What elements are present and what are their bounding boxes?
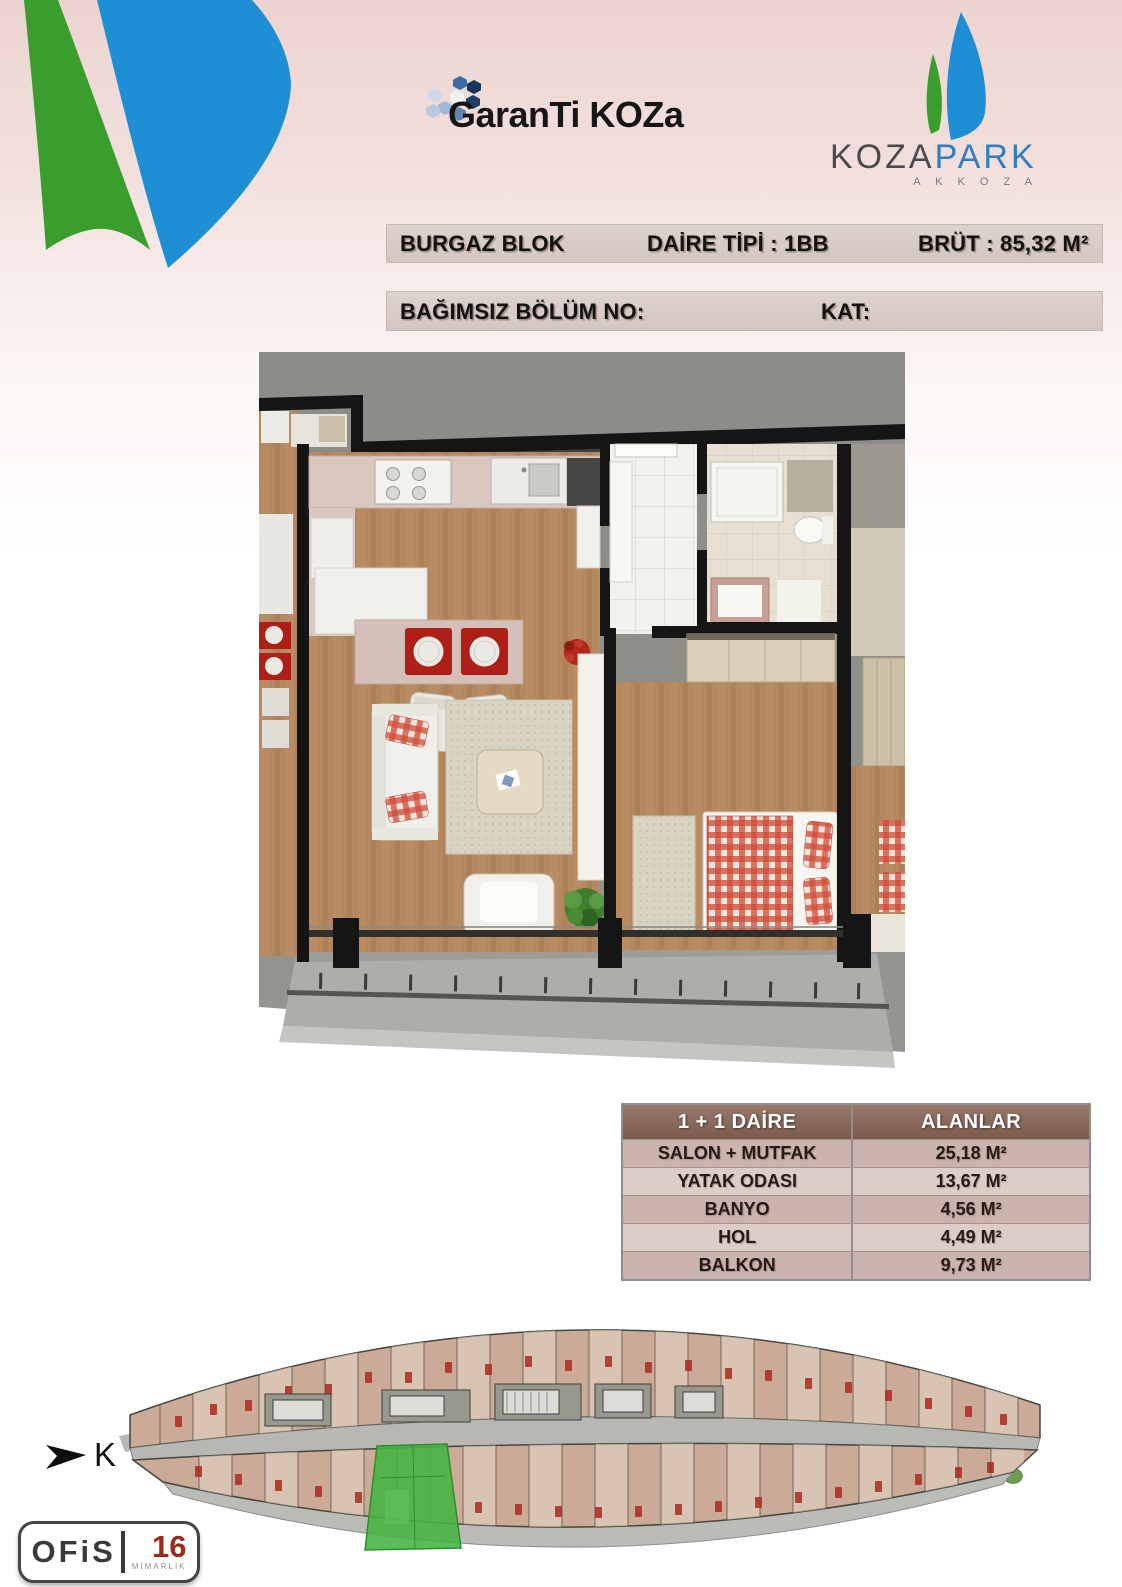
entry-door bbox=[615, 444, 677, 457]
room-area: 4,49 M² bbox=[851, 1224, 1089, 1251]
tv-cabinet bbox=[578, 654, 604, 880]
north-arrow-icon bbox=[46, 1442, 88, 1472]
table-row: SALON + MUTFAK 25,18 M² bbox=[623, 1139, 1089, 1167]
bathroom bbox=[707, 444, 837, 626]
neighbor-unit-left bbox=[259, 411, 297, 956]
ofis-divider bbox=[121, 1531, 125, 1573]
table-row: HOL 4,49 M² bbox=[623, 1223, 1089, 1251]
north-label: K bbox=[94, 1436, 116, 1474]
bed bbox=[703, 812, 837, 936]
room-area: 13,67 M² bbox=[851, 1168, 1089, 1195]
room-area: 25,18 M² bbox=[851, 1140, 1089, 1167]
wall-left bbox=[297, 444, 309, 962]
table-row: YATAK ODASI 13,67 M² bbox=[623, 1167, 1089, 1195]
ofis-number: 16 bbox=[152, 1533, 186, 1561]
unit-type: DAİRE TİPİ : 1BB bbox=[647, 231, 829, 257]
floor-label: KAT: bbox=[821, 299, 870, 325]
apartment-floorplan-image bbox=[259, 352, 905, 1075]
hall-closet bbox=[610, 462, 632, 582]
corner-sail-logo-icon bbox=[0, 0, 300, 275]
table-row: BALKON 9,73 M² bbox=[623, 1251, 1089, 1279]
room-name: BALKON bbox=[623, 1252, 851, 1279]
kozapark-word-park: PARK bbox=[935, 138, 1037, 176]
shower bbox=[711, 462, 783, 522]
header-bar-1: BURGAZ BLOK DAİRE TİPİ : 1BB BRÜT : 85,3… bbox=[386, 224, 1103, 263]
room-name: YATAK ODASI bbox=[623, 1168, 851, 1195]
header-bar-2: BAĞIMSIZ BÖLÜM NO: KAT: bbox=[386, 291, 1103, 331]
kozapark-subtitle: A K K O Z A bbox=[830, 176, 1038, 188]
block-name: BURGAZ BLOK bbox=[400, 231, 565, 257]
kozapark-logo: KOZAPARK bbox=[830, 138, 1042, 177]
wall-right bbox=[837, 444, 851, 962]
room-name: SALON + MUTFAK bbox=[623, 1140, 851, 1167]
sofa bbox=[372, 704, 438, 840]
highlighted-unit bbox=[365, 1444, 461, 1550]
ofis16-logo: OFiS 16 MİMARLIK bbox=[18, 1521, 200, 1583]
bedroom-closet bbox=[687, 634, 835, 682]
table-header-unit: 1 + 1 DAİRE bbox=[623, 1105, 851, 1139]
room-area: 4,56 M² bbox=[851, 1196, 1089, 1223]
wall-bedroom bbox=[604, 628, 616, 952]
room-name: HOL bbox=[623, 1224, 851, 1251]
room-name: BANYO bbox=[623, 1196, 851, 1223]
gross-area: BRÜT : 85,32 M² bbox=[918, 231, 1088, 257]
page: GaranTi KOZa KOZAPARK A K K O Z A BURGAZ… bbox=[0, 0, 1122, 1587]
ofis-name: OFiS bbox=[31, 1534, 115, 1570]
kozapark-word-koza: KOZA bbox=[830, 138, 935, 176]
table-row: BANYO 4,56 M² bbox=[623, 1195, 1089, 1223]
building-overview-plan bbox=[115, 1320, 1055, 1555]
bedroom-rug bbox=[633, 816, 695, 934]
areas-table: 1 + 1 DAİRE ALANLAR SALON + MUTFAK 25,18… bbox=[621, 1103, 1091, 1281]
kozapark-sail-icon bbox=[903, 12, 1008, 144]
fridge bbox=[577, 506, 600, 568]
garanti-koza-logo: GaranTi KOZa bbox=[448, 94, 683, 136]
entry-hall bbox=[610, 444, 697, 634]
toilet bbox=[794, 517, 826, 543]
independent-section-label: BAĞIMSIZ BÖLÜM NO: bbox=[400, 299, 644, 325]
ofis-subtitle: MİMARLIK bbox=[132, 1563, 187, 1570]
table-header-areas: ALANLAR bbox=[851, 1105, 1089, 1139]
room-area: 9,73 M² bbox=[851, 1252, 1089, 1279]
areas-table-header: 1 + 1 DAİRE ALANLAR bbox=[623, 1105, 1089, 1139]
stove bbox=[375, 460, 451, 504]
